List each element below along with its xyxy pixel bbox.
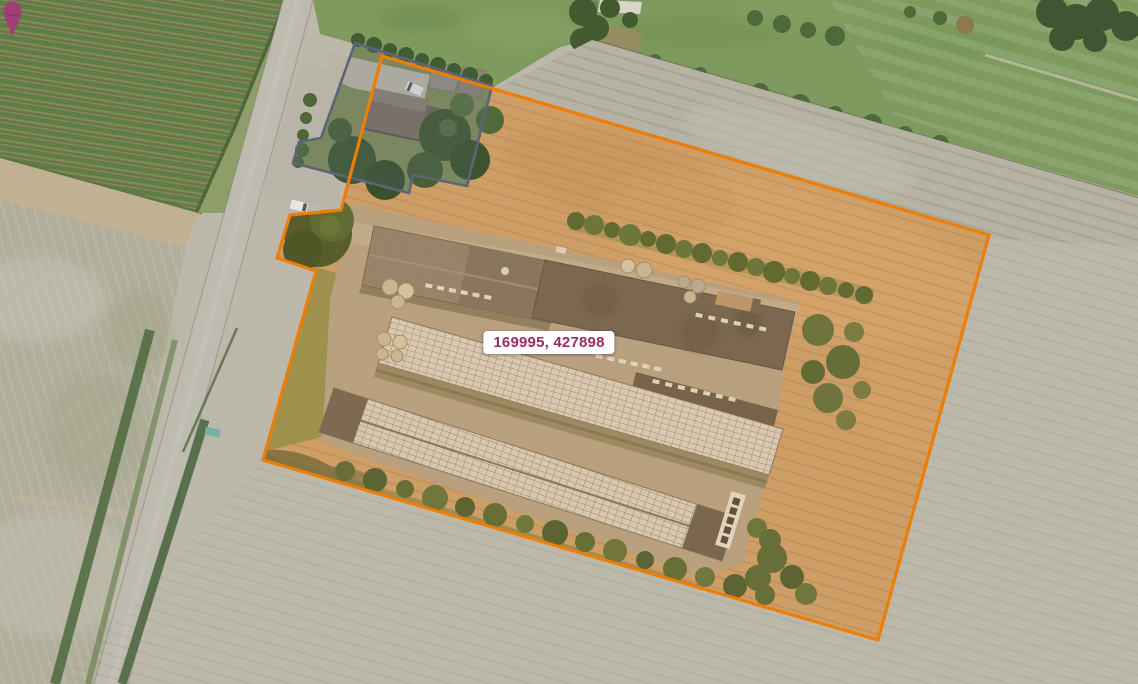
aerial-map-viewport[interactable]: 169995, 427898 — [0, 0, 1138, 684]
location-pin-icon[interactable] — [0, 0, 25, 38]
pin-shape[interactable] — [4, 1, 22, 37]
coordinate-tooltip: 169995, 427898 — [483, 331, 614, 354]
